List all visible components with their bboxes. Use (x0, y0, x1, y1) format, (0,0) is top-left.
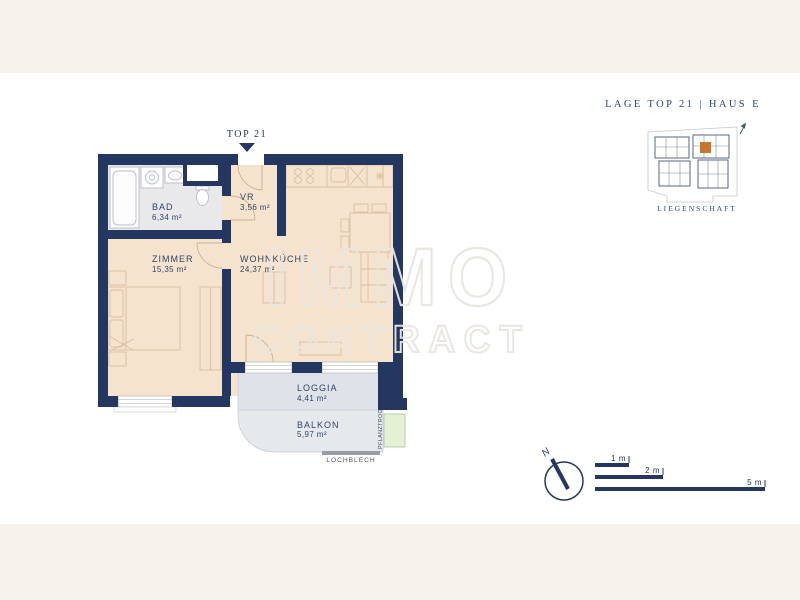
fridge-icon (376, 172, 384, 180)
bathroom-sink-icon (165, 167, 185, 183)
highlighted-unit (700, 142, 711, 153)
watermark-line1: IMMO (266, 232, 519, 323)
building-block (659, 161, 690, 186)
wall-left (98, 154, 108, 407)
loggia-pier-mid (292, 362, 322, 373)
wall-vr-wohn (277, 165, 286, 236)
watermark-line2: CONTRACT (254, 319, 531, 361)
wall-bad-vr-a (222, 165, 231, 196)
watermark: IMMO CONTRACT (254, 232, 531, 361)
shaft-wall-right (218, 162, 222, 181)
floorplan-sheet: TOP 21 BAD 6,34 m² VR 3,56 m² ZIMMER 15,… (0, 0, 800, 600)
scale-bar-1m (595, 463, 629, 467)
building-block (655, 137, 689, 158)
site-plan-caption: LIEGENSCHAFT (657, 204, 737, 213)
scale-label-2m: 2 m (645, 466, 660, 475)
shaft-wall-bottom (183, 181, 222, 186)
page-title: LAGE TOP 21 | HAUS E (605, 99, 761, 110)
scale-bar-2m (595, 475, 663, 479)
room-label-balkon: BALKON (297, 420, 340, 430)
loggia-pier-left (230, 362, 245, 373)
room-label-vr: VR (240, 192, 255, 202)
wall-bad-zimmer (108, 230, 222, 239)
room-label-bad: BAD (152, 202, 174, 212)
loggia-wall-right (378, 362, 403, 398)
loggia-window-glazing (322, 362, 378, 373)
unit-marker-label: TOP 21 (227, 129, 267, 140)
loggia-wall-foot (378, 398, 407, 410)
window-sill (114, 407, 176, 412)
washing-machine-icon (141, 167, 163, 188)
wall-bottom-b (172, 396, 230, 407)
room-label-zimmer: ZIMMER (152, 254, 194, 264)
wall-top-right (264, 154, 403, 165)
scale-label-5m: 5 m (747, 478, 762, 487)
loggia-door-glazing (245, 362, 292, 373)
toilet-icon (197, 190, 209, 206)
room-area-balkon: 5,97 m² (297, 430, 327, 439)
scale-bar-5m (595, 487, 765, 491)
scale-label-1m: 1 m (611, 454, 626, 463)
wall-bad-vr-b (222, 220, 231, 243)
wall-zimmer-wohn (222, 269, 231, 396)
room-area-vr: 3,56 m² (240, 203, 270, 212)
room-area-loggia: 4,41 m² (297, 394, 327, 403)
lochblech-railing (322, 451, 380, 455)
room-label-loggia: LOGGIA (297, 383, 338, 393)
bathtub-icon (110, 167, 139, 228)
wall-bottom-a (98, 396, 118, 407)
lochblech-label: LOCHBLECH (326, 457, 375, 464)
room-area-zimmer: 15,35 m² (152, 265, 187, 274)
pflanztrog-label: PFLANZTROG (378, 409, 384, 449)
planter-box (384, 414, 405, 447)
room-area-bad: 6,34 m² (152, 213, 182, 222)
bedroom-window (118, 396, 172, 407)
